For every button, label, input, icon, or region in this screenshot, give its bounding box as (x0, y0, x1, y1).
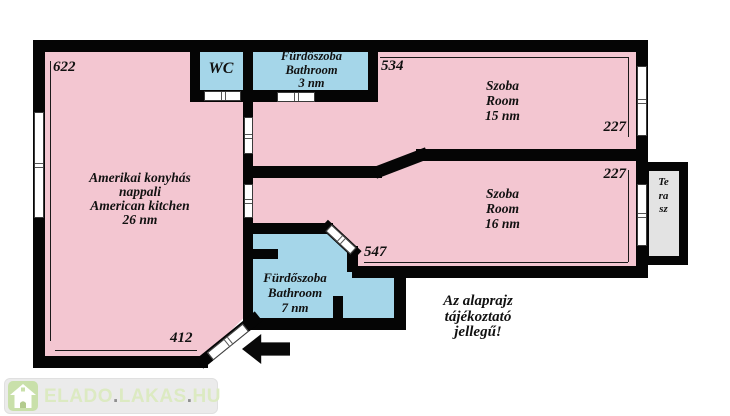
window-room15-right (637, 66, 647, 136)
wall-bath-main-bottom (243, 318, 406, 330)
wc-label: WC (196, 62, 246, 76)
entrance-arrow-icon (242, 334, 290, 364)
watermark-part1: ELADO (44, 386, 113, 407)
bathroom-top-label: Fürdőszoba Bathroom 3 nm (249, 50, 374, 91)
dim-label-room15-right: 227 (598, 120, 626, 135)
wall-bottom-living (33, 356, 208, 368)
house-icon (8, 381, 38, 411)
dim-label-living-left: 622 (53, 60, 76, 75)
door-wc (204, 91, 241, 101)
watermark-part3: HU (193, 386, 221, 407)
room15-label: Szoba Room 15 nm (440, 78, 565, 123)
dim-label-room15-top: 534 (381, 59, 404, 74)
watermark-text: ELADO.LAKAS.HU (44, 386, 221, 408)
wall-bath-main-top (243, 223, 333, 234)
room16-label: Szoba Room 16 nm (440, 186, 565, 231)
dim-label-room16-right: 227 (598, 167, 626, 182)
door-bathroom-top (277, 92, 315, 102)
window-living-left (34, 112, 44, 218)
living-room-label: Amerikai konyhás nappali American kitche… (65, 171, 215, 227)
dim-label-room16-bottom: 547 (364, 245, 387, 260)
wall-room-divider-right (416, 149, 648, 161)
door-room15 (244, 117, 253, 154)
disclaimer-note: Az alaprajz tájékoztató jellegű! (418, 294, 538, 341)
wall-bath-main-right (394, 270, 406, 322)
wall-stub-shower-h (253, 249, 278, 259)
dim-line-room15-top (380, 57, 628, 58)
terrace-door (637, 184, 647, 246)
terrace-label: Terasz (657, 176, 670, 217)
door-room16 (244, 184, 253, 218)
dim-line-living-left (50, 61, 51, 341)
dim-line-living-bottom (55, 350, 197, 351)
wall-room-divider-left (248, 166, 382, 178)
dim-label-living-bottom: 412 (170, 331, 193, 346)
dim-line-room16-bottom (364, 262, 628, 263)
watermark-part2: LAKAS (119, 386, 187, 407)
dim-line-room16-right (628, 170, 629, 262)
bathroom-main-label: Fürdőszoba Bathroom 7 nm (235, 270, 355, 315)
dim-line-room15-right (628, 57, 629, 137)
floor-plan-canvas: 622 534 227 227 547 412 WC Fürdőszoba Ba… (0, 0, 730, 416)
